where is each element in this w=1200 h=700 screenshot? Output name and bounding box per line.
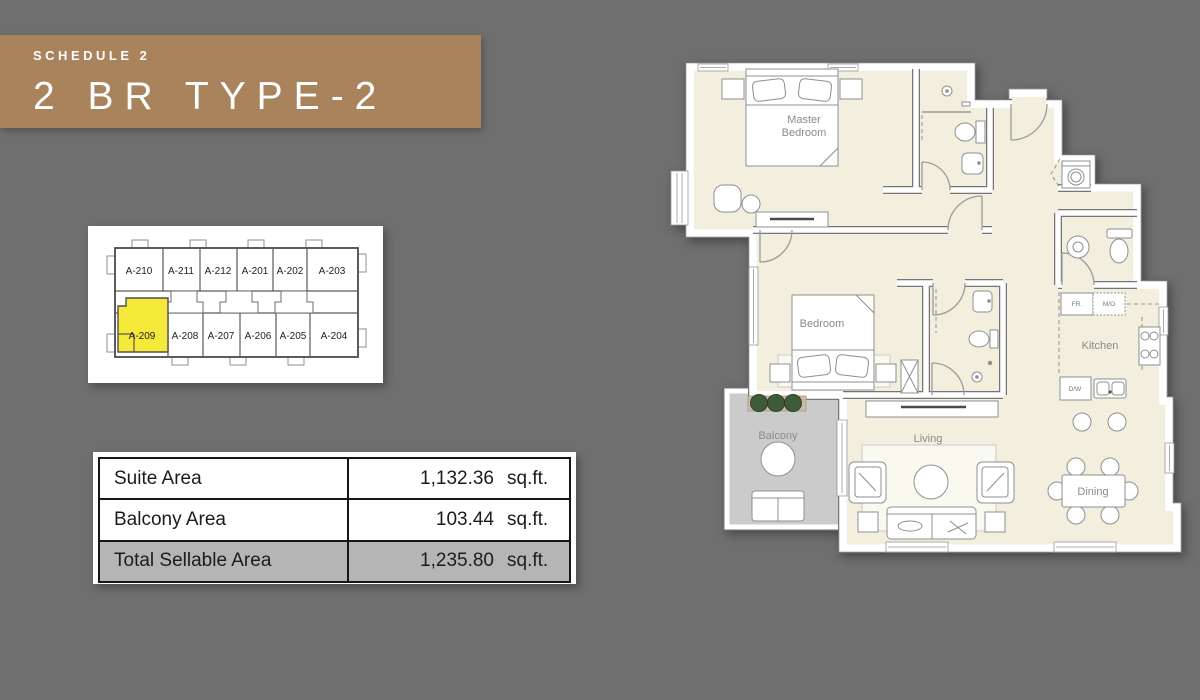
pillow bbox=[798, 78, 832, 102]
toilet-tank bbox=[990, 330, 998, 348]
row-value-cell: 1,235.80 sq.ft. bbox=[349, 542, 569, 581]
sink bbox=[1067, 236, 1089, 258]
dining-label: Dining bbox=[1077, 486, 1108, 498]
side-table bbox=[858, 512, 878, 532]
unit-label: A-206 bbox=[245, 331, 272, 342]
nightstand bbox=[770, 364, 790, 382]
unit-label: A-212 bbox=[205, 266, 232, 277]
unit-label: A-201 bbox=[242, 266, 269, 277]
master-bedroom-label: Master bbox=[787, 114, 821, 126]
row-value-cell: 103.44 sq.ft. bbox=[349, 500, 569, 539]
key-plan-card: A-210 A-211 A-212 A-201 A-202 A-203 A-20… bbox=[88, 226, 383, 383]
page: SCHEDULE 2 2 BR TYPE-2 bbox=[0, 0, 1200, 700]
toilet bbox=[955, 123, 975, 141]
page-title: 2 BR TYPE-2 bbox=[33, 75, 481, 119]
unit-label: A-202 bbox=[277, 266, 304, 277]
bed-headboard bbox=[792, 382, 874, 390]
key-plan-drawing: A-210 A-211 A-212 A-201 A-202 A-203 A-20… bbox=[88, 226, 383, 383]
kitchen-label: Kitchen bbox=[1082, 340, 1119, 352]
bay-window bbox=[671, 171, 688, 225]
unit-label: A-207 bbox=[208, 331, 235, 342]
shower-tap bbox=[962, 102, 970, 106]
dining-chair bbox=[1101, 458, 1119, 476]
faucet bbox=[1108, 390, 1111, 393]
unit-label-highlighted: A-209 bbox=[129, 331, 156, 342]
nightstand bbox=[876, 364, 896, 382]
coffee-table bbox=[914, 465, 948, 499]
row-value: 1,235.80 bbox=[355, 550, 494, 572]
table-row-total-sellable-area: Total Sellable Area 1,235.80 sq.ft. bbox=[100, 542, 569, 581]
side-table bbox=[742, 195, 760, 213]
floor-plan: Master Bedroom Bedroom Kitchen Living Di… bbox=[670, 55, 1190, 590]
unit-label: A-211 bbox=[168, 266, 194, 277]
dining-chair bbox=[1101, 506, 1119, 524]
balcony-table bbox=[761, 442, 795, 476]
pillow bbox=[835, 354, 869, 378]
row-label: Suite Area bbox=[100, 459, 349, 498]
table-row-balcony-area: Balcony Area 103.44 sq.ft. bbox=[100, 500, 569, 541]
row-label: Balcony Area bbox=[100, 500, 349, 539]
toilet-tank bbox=[976, 121, 985, 143]
washing-machine bbox=[1062, 161, 1090, 188]
plant-icon bbox=[785, 395, 802, 412]
microwave-label: M/O bbox=[1103, 301, 1115, 308]
row-value-cell: 1,132.36 sq.ft. bbox=[349, 459, 569, 498]
area-table: Suite Area 1,132.36 sq.ft. Balcony Area … bbox=[93, 452, 576, 584]
shower-tap bbox=[988, 361, 992, 365]
toilet-tank bbox=[1107, 229, 1132, 238]
row-value: 103.44 bbox=[355, 509, 494, 531]
fridge-label: FR. bbox=[1072, 301, 1083, 308]
unit-label: A-208 bbox=[172, 331, 199, 342]
toilet bbox=[969, 331, 989, 347]
bar-stool bbox=[1073, 413, 1091, 431]
row-value: 1,132.36 bbox=[355, 468, 494, 490]
unit-label: A-203 bbox=[319, 266, 346, 277]
highlighted-unit-A-209 bbox=[118, 298, 168, 352]
row-unit: sq.ft. bbox=[507, 509, 559, 531]
laundry bbox=[1062, 161, 1090, 188]
living-label: Living bbox=[914, 433, 943, 445]
armchair bbox=[714, 185, 741, 212]
dining-chair bbox=[1067, 458, 1085, 476]
schedule-label: SCHEDULE 2 bbox=[33, 48, 481, 63]
entry-opening bbox=[1012, 97, 1046, 111]
plant-icon bbox=[768, 395, 785, 412]
pillow bbox=[752, 78, 786, 102]
tv-console bbox=[866, 401, 998, 417]
floor-plan-drawing: Master Bedroom Bedroom Kitchen Living Di… bbox=[670, 55, 1190, 590]
master-bedroom-label-2: Bedroom bbox=[782, 127, 827, 139]
bedroom-label: Bedroom bbox=[800, 318, 845, 330]
nightstand bbox=[722, 79, 744, 99]
unit-label: A-204 bbox=[321, 331, 348, 342]
dining-chair bbox=[1067, 506, 1085, 524]
row-unit: sq.ft. bbox=[507, 468, 559, 490]
unit-label: A-205 bbox=[280, 331, 307, 342]
toilet bbox=[1110, 239, 1128, 263]
side-table bbox=[985, 512, 1005, 532]
dishwasher-label: D/W bbox=[1069, 386, 1083, 393]
schedule-banner: SCHEDULE 2 2 BR TYPE-2 bbox=[0, 35, 481, 128]
row-label: Total Sellable Area bbox=[100, 542, 349, 581]
row-unit: sq.ft. bbox=[507, 550, 559, 572]
plant-icon bbox=[751, 395, 768, 412]
nightstand bbox=[840, 79, 862, 99]
bar-stool bbox=[1108, 413, 1126, 431]
pillow bbox=[797, 354, 831, 378]
unit-label: A-210 bbox=[126, 266, 153, 277]
balcony-label: Balcony bbox=[758, 430, 798, 442]
table-row-suite-area: Suite Area 1,132.36 sq.ft. bbox=[100, 459, 569, 500]
